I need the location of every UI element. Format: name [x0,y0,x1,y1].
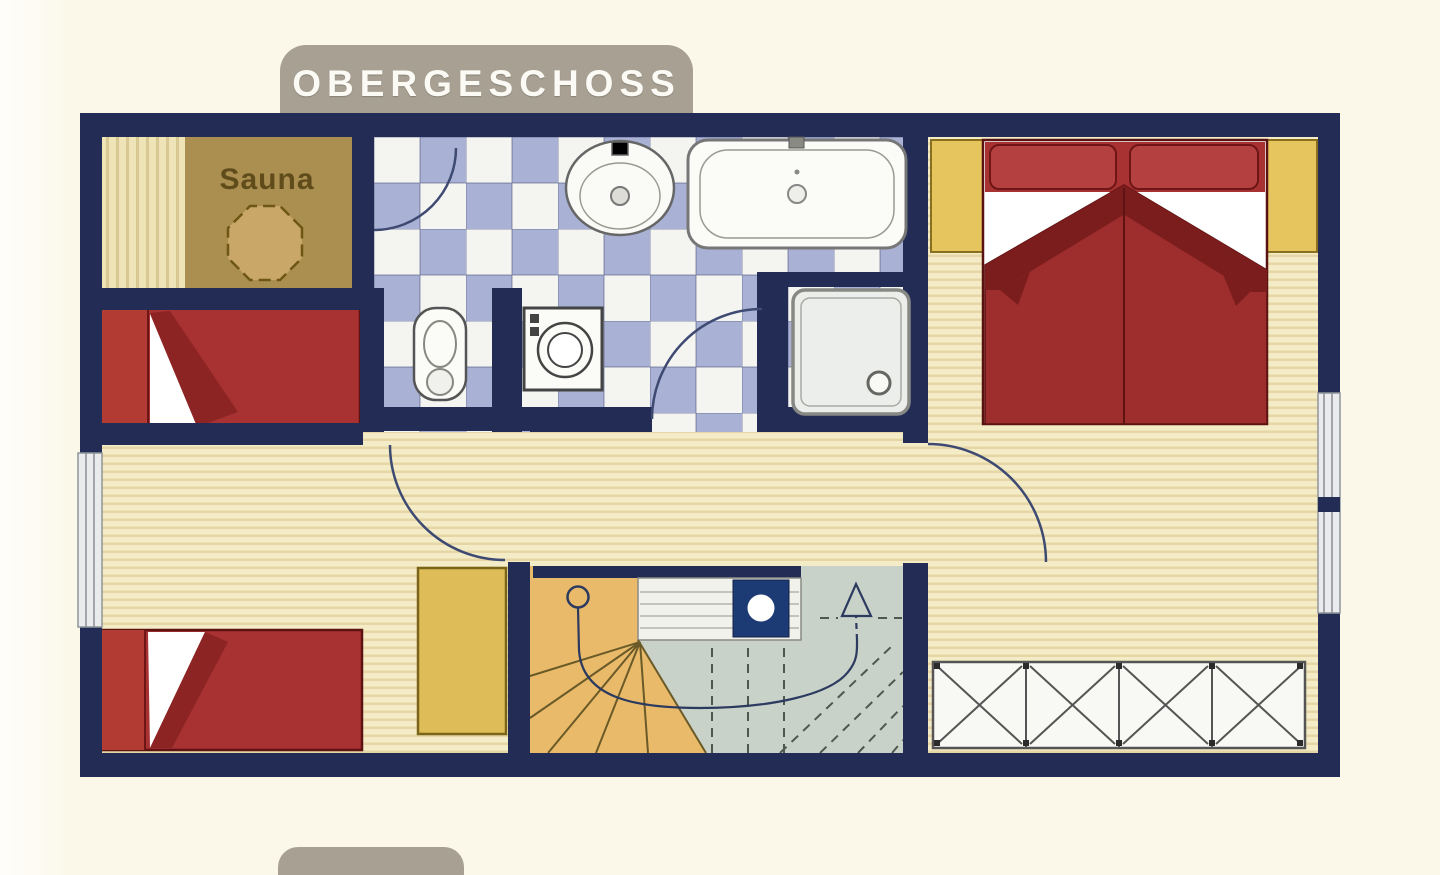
wall-bath-bottom-left [530,407,652,432]
wardrobe [933,662,1305,748]
bathtub-drain-icon [788,185,806,203]
wall-stair-left-stub [508,562,530,777]
wall-sauna-right [352,137,374,292]
wall-right-upper [1318,113,1340,393]
wall-shower-left-stub [757,272,788,432]
wall-sauna-bottom [100,288,374,310]
single-bed-bottom [100,630,362,750]
wall-wc-bottom [360,407,533,431]
pillow-left [990,145,1116,189]
toilet [414,308,466,400]
shower [793,290,909,414]
window-left [78,453,102,627]
wall-bedroom-lower [903,563,928,777]
sink [566,141,674,235]
bathtub [688,137,906,248]
washing-machine [524,308,602,390]
wall-right-lower [1318,613,1340,777]
stair-railing-top [533,566,801,578]
pillow-right [1130,145,1258,189]
sauna-bench [100,137,185,290]
double-bed [983,140,1267,424]
shower-drain-icon [868,372,890,394]
wall-top [80,113,1340,137]
nightstand-left [931,140,985,252]
wall-bottom [80,753,1340,777]
wall-below-bed1 [100,423,363,445]
sink-faucet-icon [612,142,628,155]
sauna-room [100,137,352,290]
hallway-cabinet [418,568,506,734]
chimney-flue-icon [748,595,775,622]
sink-drain-icon [611,187,629,205]
single-bed-top [100,308,360,426]
sauna-label: Sauna [219,163,314,196]
wall-left-lower [80,627,102,777]
window-right [1318,393,1340,613]
staircase [530,566,903,753]
floorplan-page: OBERGESCHOSS [0,0,1440,875]
sauna-stove-icon [228,206,302,280]
bathtub-faucet-icon [789,137,804,148]
wall-left-upper [80,113,102,453]
nightstand-right [1267,140,1317,252]
floor-plan: Sauna [0,0,1440,875]
